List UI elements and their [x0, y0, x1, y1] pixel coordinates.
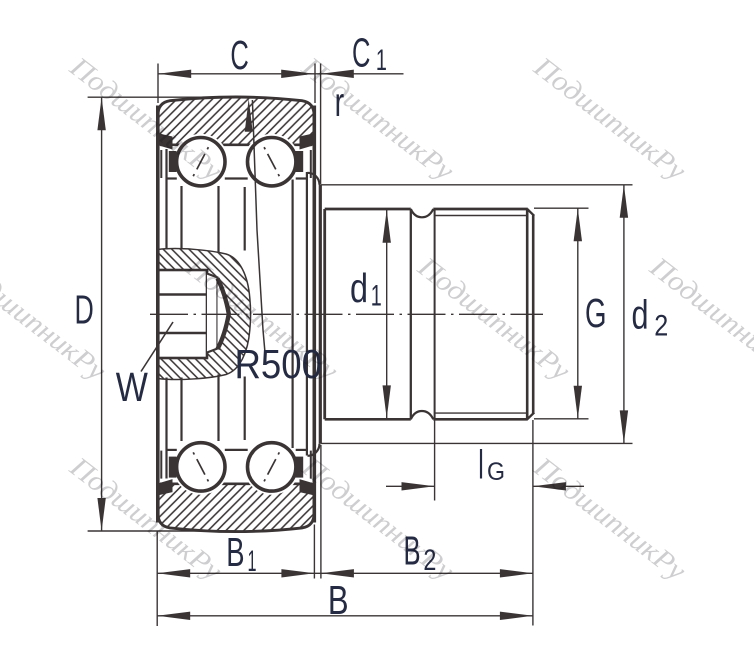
- svg-text:d: d: [632, 291, 649, 337]
- svg-text:1: 1: [376, 44, 387, 77]
- svg-text:C: C: [352, 29, 370, 75]
- svg-text:G: G: [487, 458, 505, 486]
- svg-text:1: 1: [371, 280, 382, 313]
- svg-text:l: l: [478, 442, 484, 488]
- svg-text:W: W: [116, 364, 148, 410]
- svg-text:B: B: [226, 529, 244, 575]
- svg-text:B: B: [328, 577, 349, 623]
- svg-text:2: 2: [654, 309, 668, 342]
- svg-text:d: d: [350, 265, 368, 311]
- svg-text:G: G: [585, 290, 607, 336]
- svg-text:1: 1: [248, 545, 257, 578]
- svg-text:D: D: [75, 287, 94, 333]
- svg-text:C: C: [230, 32, 248, 78]
